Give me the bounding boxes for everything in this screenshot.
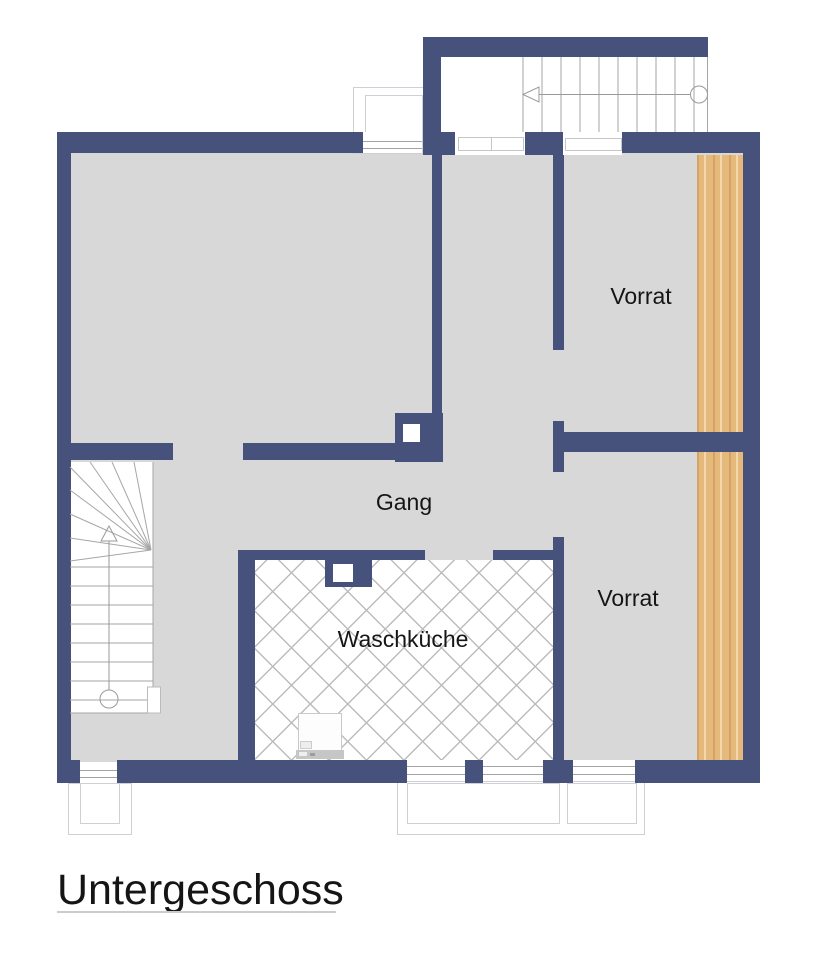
light-shaft-bottom-middle-inner-2 — [567, 783, 637, 824]
title-underline — [57, 911, 336, 913]
wall-bottom-pier-1 — [465, 760, 483, 783]
wall-bottom-pier-2 — [543, 760, 573, 783]
wall-bottom-right — [635, 760, 760, 783]
newel-circle-icon — [100, 690, 118, 708]
window-bottom-left — [80, 762, 117, 783]
newel-circle-icon — [691, 86, 708, 103]
wall-right — [743, 152, 760, 783]
wall-left — [57, 132, 71, 783]
winder-fan-lines — [70, 462, 151, 561]
wall-waschkueche-left — [238, 550, 255, 760]
wall-bottom-left-corner — [57, 760, 80, 783]
light-shaft-bottom-left-inner — [80, 783, 120, 824]
window-glazing-line — [483, 766, 543, 767]
stair-base-step — [148, 687, 161, 713]
washing-machine-knob — [299, 752, 307, 756]
window-glazing-line — [363, 141, 422, 142]
window-glazing-line — [573, 766, 635, 767]
walk-arrow-left-icon — [523, 87, 539, 102]
wall-room-divider-vertical — [432, 155, 442, 413]
window-vorrat-bottom — [573, 760, 635, 781]
room-label-gang: Gang — [354, 489, 454, 516]
washing-machine-controls — [296, 750, 344, 759]
room-label-waschkueche: Waschküche — [313, 626, 493, 653]
page-title: Untergeschoss — [57, 866, 344, 915]
chimney-a-core — [403, 424, 420, 442]
lower-staircase — [70, 462, 162, 714]
washing-machine-panel — [300, 741, 312, 749]
window-glazing-line — [483, 774, 543, 775]
floor-plan: Vorrat Vorrat Gang Waschküche Untergesch… — [0, 0, 821, 960]
wall-top-left — [57, 132, 363, 153]
wall-stairwell-top — [423, 37, 708, 57]
wall-waschkueche-top-2 — [493, 550, 553, 560]
window-glazing-line — [407, 766, 465, 767]
wall-top-block-2 — [525, 132, 563, 155]
upper-staircase — [441, 57, 709, 133]
room-label-vorrat-bottom: Vorrat — [563, 585, 693, 612]
wall-waschkueche-top-1 — [255, 550, 425, 560]
wall-bottom-left — [117, 760, 407, 783]
washing-machine — [296, 712, 344, 759]
room-label-vorrat-top: Vorrat — [576, 283, 706, 310]
wall-vorrat-divider — [564, 432, 760, 452]
door-threshold-1 — [458, 137, 524, 151]
wall-mid-right — [243, 443, 395, 460]
window-waschkueche-1 — [407, 760, 465, 781]
window-waschkueche-2 — [483, 760, 543, 781]
window-glazing-line — [80, 777, 117, 778]
wall-top-right — [622, 132, 760, 153]
window-glazing-line — [573, 774, 635, 775]
wall-mid-left — [70, 443, 173, 460]
wall-top-block-1 — [423, 132, 455, 155]
door-threshold-2 — [565, 138, 622, 151]
wall-gang-right-1 — [553, 155, 564, 350]
window-glazing-line — [363, 148, 422, 149]
window-top — [363, 132, 422, 153]
chimney-b-core — [333, 564, 353, 582]
washing-machine-knob — [310, 753, 315, 756]
wall-gang-right-3 — [553, 537, 564, 760]
wall-gang-right-2 — [553, 421, 564, 472]
light-shaft-bottom-middle-inner-1 — [407, 783, 560, 824]
window-glazing-line — [407, 774, 465, 775]
window-glazing-line — [80, 770, 117, 771]
door-threshold-divider — [491, 138, 492, 150]
wood-floor-strip-vorrat-bottom — [697, 452, 743, 760]
